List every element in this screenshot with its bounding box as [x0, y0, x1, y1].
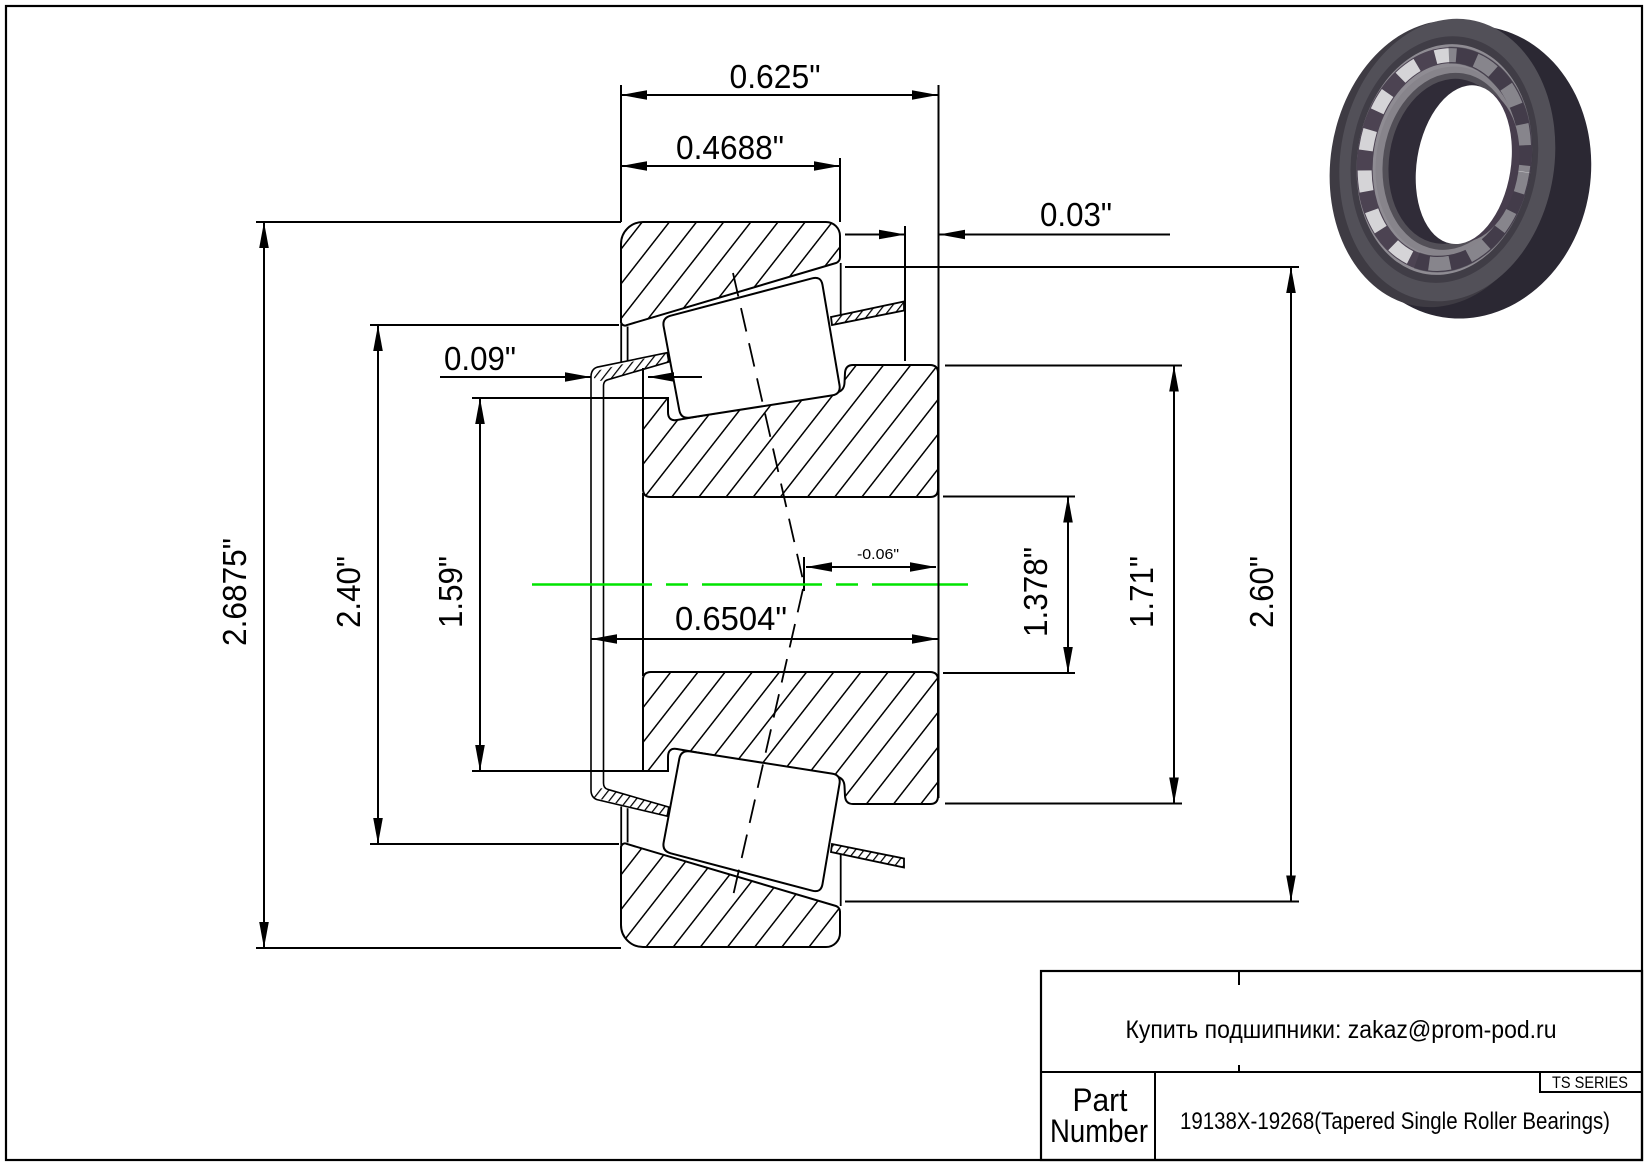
svg-text:1.71": 1.71" [1123, 556, 1160, 628]
svg-text:0.625": 0.625" [730, 58, 821, 95]
svg-text:1.378": 1.378" [1017, 547, 1054, 637]
svg-text:2.40": 2.40" [330, 556, 367, 628]
svg-text:-0.06": -0.06" [857, 546, 899, 563]
svg-text:0.09": 0.09" [444, 340, 516, 377]
svg-text:0.6504": 0.6504" [675, 600, 787, 637]
svg-text:1.59": 1.59" [432, 556, 469, 628]
svg-text:TS SERIES: TS SERIES [1552, 1073, 1628, 1092]
svg-text:2.60": 2.60" [1243, 556, 1280, 628]
svg-text:0.4688": 0.4688" [676, 129, 784, 166]
svg-text:19138X-19268(Tapered Single Ro: 19138X-19268(Tapered Single Roller Beari… [1180, 1108, 1610, 1135]
svg-text:Купить подшипники: zakaz@prom-: Купить подшипники: zakaz@prom-pod.ru [1126, 1016, 1557, 1044]
svg-text:Number: Number [1050, 1113, 1148, 1149]
svg-text:0.03": 0.03" [1040, 196, 1112, 233]
svg-text:2.6875": 2.6875" [216, 538, 253, 646]
